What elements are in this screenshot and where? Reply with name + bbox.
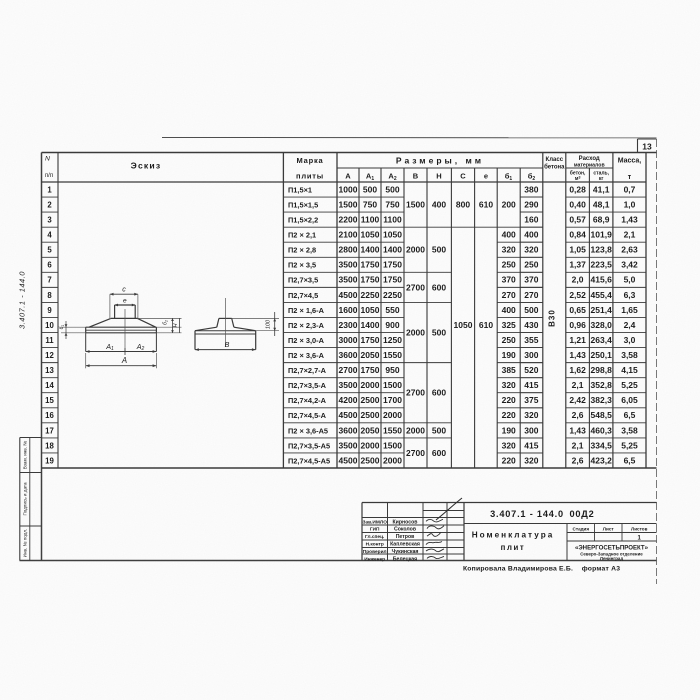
svg-text:123,8: 123,8 — [591, 245, 613, 255]
svg-text:190: 190 — [502, 350, 516, 360]
svg-text:12: 12 — [45, 351, 54, 360]
svg-text:6,5: 6,5 — [624, 410, 636, 420]
svg-text:1,43: 1,43 — [569, 350, 586, 360]
svg-text:2000: 2000 — [383, 455, 402, 465]
svg-text:610: 610 — [479, 199, 493, 209]
svg-text:П2,7×4,5: П2,7×4,5 — [288, 291, 318, 300]
svg-text:5,25: 5,25 — [621, 380, 638, 390]
svg-text:2000: 2000 — [406, 425, 425, 435]
svg-text:251,4: 251,4 — [591, 305, 613, 315]
svg-text:А: А — [345, 172, 351, 181]
svg-text:263,4: 263,4 — [591, 335, 613, 345]
svg-text:2000: 2000 — [383, 410, 402, 420]
svg-text:1,43: 1,43 — [621, 215, 638, 225]
svg-text:В30: В30 — [548, 309, 557, 327]
svg-text:5,0: 5,0 — [624, 275, 636, 285]
svg-text:15: 15 — [45, 396, 54, 405]
svg-text:1500: 1500 — [383, 440, 402, 450]
svg-text:1,37: 1,37 — [569, 260, 586, 270]
svg-text:520: 520 — [524, 365, 538, 375]
svg-text:0,65: 0,65 — [569, 305, 586, 315]
svg-text:«ЭНЕРГОСЕТЬПРОЕКТ»: «ЭНЕРГОСЕТЬПРОЕКТ» — [575, 545, 649, 552]
svg-text:2,4: 2,4 — [624, 320, 636, 330]
svg-text:4: 4 — [47, 231, 52, 240]
svg-text:2250: 2250 — [383, 290, 402, 300]
svg-text:385: 385 — [502, 365, 516, 375]
svg-text:400: 400 — [502, 305, 516, 315]
svg-text:298,8: 298,8 — [591, 365, 613, 375]
svg-text:1500: 1500 — [339, 199, 358, 209]
svg-text:Белецкая: Белецкая — [393, 556, 417, 562]
svg-text:Ленинград: Ленинград — [600, 556, 623, 561]
svg-text:430: 430 — [524, 320, 538, 330]
svg-text:2000: 2000 — [406, 245, 425, 255]
svg-text:с: с — [122, 287, 126, 294]
svg-text:П2 × 2,8: П2 × 2,8 — [288, 246, 316, 255]
svg-text:1750: 1750 — [383, 260, 402, 270]
svg-text:4500: 4500 — [339, 455, 358, 465]
svg-text:4200: 4200 — [339, 395, 358, 405]
svg-text:500: 500 — [432, 327, 446, 337]
svg-text:14: 14 — [45, 381, 54, 390]
svg-text:Подпись и дата: Подпись и дата — [22, 482, 27, 515]
svg-text:1050: 1050 — [361, 230, 380, 240]
svg-text:0,84: 0,84 — [569, 230, 586, 240]
svg-text:415: 415 — [524, 380, 538, 390]
svg-text:2200: 2200 — [339, 215, 358, 225]
svg-text:220: 220 — [502, 455, 516, 465]
svg-text:3,58: 3,58 — [621, 350, 638, 360]
svg-text:3: 3 — [47, 216, 52, 225]
svg-text:2300: 2300 — [339, 320, 358, 330]
svg-text:320: 320 — [524, 410, 538, 420]
svg-text:Эскиз: Эскиз — [131, 161, 162, 171]
svg-text:101,9: 101,9 — [591, 230, 613, 240]
svg-text:1,05: 1,05 — [569, 245, 586, 255]
svg-text:8: 8 — [47, 291, 52, 300]
svg-text:П1,5×2,2: П1,5×2,2 — [288, 216, 318, 225]
svg-text:500: 500 — [524, 305, 538, 315]
svg-text:П2 × 2,3-А: П2 × 2,3-А — [288, 321, 325, 330]
svg-text:1,43: 1,43 — [569, 425, 586, 435]
svg-text:500: 500 — [385, 184, 399, 194]
svg-text:250: 250 — [502, 260, 516, 270]
svg-text:Марка: Марка — [296, 156, 323, 165]
svg-text:455,4: 455,4 — [591, 290, 613, 300]
svg-text:2700: 2700 — [406, 388, 425, 398]
svg-text:Копировала Владимирова Е.Б.: Копировала Владимирова Е.Б. — [463, 566, 573, 573]
svg-text:400: 400 — [524, 230, 538, 240]
svg-text:П2,7×3,5: П2,7×3,5 — [288, 276, 318, 285]
svg-text:С: С — [460, 172, 466, 181]
svg-text:3600: 3600 — [339, 425, 358, 435]
svg-text:2000: 2000 — [406, 327, 425, 337]
svg-text:1700: 1700 — [383, 395, 402, 405]
svg-text:6,5: 6,5 — [624, 455, 636, 465]
svg-text:900: 900 — [385, 320, 399, 330]
svg-text:2,1: 2,1 — [572, 440, 584, 450]
svg-text:1000: 1000 — [339, 184, 358, 194]
svg-text:548,5: 548,5 — [591, 410, 613, 420]
svg-text:3500: 3500 — [339, 275, 358, 285]
svg-text:3000: 3000 — [339, 335, 358, 345]
svg-text:П2 × 3,6-А5: П2 × 3,6-А5 — [288, 426, 328, 435]
svg-text:2500: 2500 — [361, 455, 380, 465]
svg-text:460,3: 460,3 — [591, 425, 613, 435]
svg-text:Листов: Листов — [631, 527, 648, 532]
svg-text:2: 2 — [47, 200, 52, 209]
svg-text:Проверил: Проверил — [363, 549, 387, 555]
svg-text:материалов: материалов — [574, 163, 605, 169]
svg-text:Лист: Лист — [603, 527, 615, 532]
svg-text:П2,7×2,7-А: П2,7×2,7-А — [288, 366, 327, 375]
svg-text:270: 270 — [524, 290, 538, 300]
svg-text:П2,7×4,2-А: П2,7×4,2-А — [288, 396, 327, 405]
svg-text:290: 290 — [524, 199, 538, 209]
svg-text:10: 10 — [45, 321, 54, 330]
svg-text:е: е — [484, 172, 488, 181]
svg-text:кг: кг — [599, 176, 604, 182]
svg-text:400: 400 — [502, 230, 516, 240]
svg-text:2000: 2000 — [361, 380, 380, 390]
svg-text:Номенклатура: Номенклатура — [472, 531, 555, 540]
svg-text:П2,7×4,5-А: П2,7×4,5-А — [288, 411, 327, 420]
svg-text:1050: 1050 — [454, 320, 473, 330]
svg-text:П2 × 3,5: П2 × 3,5 — [288, 261, 316, 270]
svg-text:190: 190 — [502, 425, 516, 435]
svg-text:Н.контр: Н.контр — [366, 542, 384, 548]
svg-text:415,6: 415,6 — [591, 275, 613, 285]
svg-text:Н: Н — [436, 172, 441, 181]
svg-text:2,52: 2,52 — [569, 290, 586, 300]
svg-text:4,15: 4,15 — [621, 365, 638, 375]
svg-text:320: 320 — [502, 440, 516, 450]
svg-text:9: 9 — [47, 306, 52, 315]
svg-text:0,57: 0,57 — [569, 215, 586, 225]
svg-text:1,21: 1,21 — [569, 335, 586, 345]
svg-text:334,5: 334,5 — [591, 440, 613, 450]
svg-text:Инженер: Инженер — [364, 556, 385, 562]
svg-text:6,05: 6,05 — [621, 395, 638, 405]
svg-text:бетона: бетона — [544, 164, 565, 171]
svg-text:3,58: 3,58 — [621, 425, 638, 435]
svg-text:19: 19 — [45, 456, 54, 465]
svg-text:2000: 2000 — [361, 440, 380, 450]
svg-text:200: 200 — [502, 199, 516, 209]
svg-text:Петров: Петров — [396, 534, 415, 540]
svg-text:Соколов: Соколов — [394, 527, 416, 533]
svg-text:500: 500 — [432, 245, 446, 255]
svg-text:270: 270 — [502, 290, 516, 300]
svg-text:П2,7×4,5-А5: П2,7×4,5-А5 — [288, 456, 330, 465]
svg-text:П2 × 3,0-А: П2 × 3,0-А — [288, 336, 325, 345]
svg-text:1550: 1550 — [383, 350, 402, 360]
svg-text:3500: 3500 — [339, 260, 358, 270]
svg-text:А: А — [121, 356, 127, 365]
svg-text:2700: 2700 — [406, 448, 425, 458]
svg-text:П2 × 2,1: П2 × 2,1 — [288, 231, 316, 240]
svg-text:1100: 1100 — [383, 215, 402, 225]
svg-text:320: 320 — [502, 380, 516, 390]
svg-text:16: 16 — [45, 411, 54, 420]
svg-text:1750: 1750 — [361, 260, 380, 270]
svg-text:1050: 1050 — [361, 305, 380, 315]
svg-text:Взам. инв. №: Взам. инв. № — [22, 441, 27, 470]
svg-text:4500: 4500 — [339, 290, 358, 300]
svg-text:48,1: 48,1 — [593, 199, 610, 209]
svg-text:250,1: 250,1 — [591, 350, 613, 360]
svg-text:0,96: 0,96 — [569, 320, 586, 330]
svg-text:2,63: 2,63 — [621, 245, 638, 255]
svg-text:2250: 2250 — [361, 290, 380, 300]
svg-text:7: 7 — [47, 276, 51, 285]
svg-text:750: 750 — [385, 199, 399, 209]
svg-text:1050: 1050 — [383, 230, 402, 240]
svg-text:Масса,: Масса, — [618, 158, 642, 165]
svg-text:4500: 4500 — [339, 410, 358, 420]
svg-text:41,1: 41,1 — [593, 184, 610, 194]
svg-text:3,0: 3,0 — [624, 335, 636, 345]
svg-text:380: 380 — [524, 184, 538, 194]
svg-text:Зав.ИМЛО: Зав.ИМЛО — [362, 519, 387, 525]
svg-text:2500: 2500 — [361, 410, 380, 420]
svg-text:2700: 2700 — [406, 282, 425, 292]
svg-text:250: 250 — [502, 335, 516, 345]
svg-text:1400: 1400 — [361, 320, 380, 330]
svg-text:1750: 1750 — [361, 365, 380, 375]
svg-text:415: 415 — [524, 440, 538, 450]
svg-text:П1,5×1: П1,5×1 — [288, 185, 312, 194]
svg-text:2700: 2700 — [339, 365, 358, 375]
svg-text:300: 300 — [524, 350, 538, 360]
svg-text:1,65: 1,65 — [621, 305, 638, 315]
svg-text:2,6: 2,6 — [572, 455, 584, 465]
svg-text:0,28: 0,28 — [569, 184, 586, 194]
svg-text:1,62: 1,62 — [569, 365, 586, 375]
svg-text:370: 370 — [502, 275, 516, 285]
svg-text:500: 500 — [432, 425, 446, 435]
svg-text:610: 610 — [479, 320, 493, 330]
svg-text:ГИП: ГИП — [370, 527, 380, 533]
svg-text:е: е — [123, 298, 127, 305]
svg-text:600: 600 — [432, 282, 446, 292]
svg-text:0,7: 0,7 — [624, 184, 636, 194]
svg-text:1400: 1400 — [361, 245, 380, 255]
svg-text:220: 220 — [502, 395, 516, 405]
svg-text:325: 325 — [502, 320, 516, 330]
svg-text:2800: 2800 — [339, 245, 358, 255]
svg-text:00Д2: 00Д2 — [569, 509, 594, 519]
svg-text:5: 5 — [47, 246, 52, 255]
svg-text:18: 18 — [45, 441, 54, 450]
svg-text:160: 160 — [524, 215, 538, 225]
svg-text:750: 750 — [363, 199, 377, 209]
svg-text:1250: 1250 — [383, 335, 402, 345]
svg-text:Размеры, мм: Размеры, мм — [396, 156, 484, 166]
svg-text:600: 600 — [432, 388, 446, 398]
svg-text:1100: 1100 — [361, 215, 380, 225]
svg-text:400: 400 — [432, 199, 446, 209]
svg-text:100: 100 — [266, 319, 272, 329]
svg-text:1: 1 — [47, 185, 52, 194]
svg-text:3.407.1 - 144.0: 3.407.1 - 144.0 — [490, 509, 564, 519]
svg-text:2,6: 2,6 — [572, 410, 584, 420]
svg-text:1,0: 1,0 — [624, 199, 636, 209]
svg-text:3.407.1 - 144.0: 3.407.1 - 144.0 — [18, 271, 27, 329]
svg-text:1600: 1600 — [339, 305, 358, 315]
svg-text:формат А3: формат А3 — [582, 566, 621, 573]
svg-text:5,25: 5,25 — [621, 440, 638, 450]
svg-text:320: 320 — [524, 245, 538, 255]
svg-text:423,2: 423,2 — [591, 455, 613, 465]
svg-text:352,8: 352,8 — [591, 380, 613, 390]
svg-text:П1,5×1,5: П1,5×1,5 — [288, 200, 318, 209]
svg-text:П2 × 1,6-А: П2 × 1,6-А — [288, 306, 325, 315]
svg-text:Чукинская: Чукинская — [392, 549, 419, 555]
svg-text:1400: 1400 — [383, 245, 402, 255]
svg-text:п/п: п/п — [45, 173, 53, 179]
svg-text:3500: 3500 — [339, 380, 358, 390]
svg-text:т: т — [628, 174, 632, 181]
svg-text:950: 950 — [385, 365, 399, 375]
svg-text:1500: 1500 — [406, 199, 425, 209]
svg-text:13: 13 — [45, 366, 54, 375]
svg-text:П2,7×3,5-А: П2,7×3,5-А — [288, 381, 327, 390]
svg-text:0,40: 0,40 — [569, 199, 586, 209]
svg-text:N: N — [45, 156, 50, 163]
svg-text:Н: Н — [173, 323, 179, 327]
svg-text:В: В — [225, 340, 230, 349]
svg-text:6,3: 6,3 — [624, 290, 636, 300]
svg-text:плиты: плиты — [296, 172, 324, 181]
svg-text:68,9: 68,9 — [593, 215, 610, 225]
svg-text:382,3: 382,3 — [591, 395, 613, 405]
svg-text:Расход: Расход — [579, 156, 600, 162]
svg-text:17: 17 — [45, 426, 54, 435]
svg-text:Кирносов: Кирносов — [392, 519, 417, 525]
svg-text:220: 220 — [502, 410, 516, 420]
svg-text:328,0: 328,0 — [591, 320, 613, 330]
svg-text:355: 355 — [524, 335, 538, 345]
svg-text:В: В — [413, 172, 419, 181]
svg-text:1550: 1550 — [383, 425, 402, 435]
svg-text:320: 320 — [524, 455, 538, 465]
svg-text:13: 13 — [642, 142, 652, 152]
svg-text:1750: 1750 — [361, 335, 380, 345]
svg-text:Инв. № подл.: Инв. № подл. — [22, 529, 27, 558]
svg-text:2100: 2100 — [339, 230, 358, 240]
svg-text:223,5: 223,5 — [591, 260, 613, 270]
svg-text:1500: 1500 — [383, 380, 402, 390]
svg-text:6: 6 — [47, 261, 52, 270]
svg-text:550: 550 — [385, 305, 399, 315]
svg-text:375: 375 — [524, 395, 538, 405]
svg-text:П2,7×3,5-А5: П2,7×3,5-А5 — [288, 441, 330, 450]
svg-text:3500: 3500 — [339, 440, 358, 450]
svg-text:1750: 1750 — [361, 275, 380, 285]
svg-text:320: 320 — [502, 245, 516, 255]
svg-text:300: 300 — [524, 425, 538, 435]
svg-text:250: 250 — [524, 260, 538, 270]
svg-text:600: 600 — [432, 448, 446, 458]
svg-text:2,1: 2,1 — [624, 230, 636, 240]
svg-text:плит: плит — [501, 543, 526, 552]
svg-text:3600: 3600 — [339, 350, 358, 360]
svg-text:Класс: Класс — [546, 157, 564, 163]
svg-text:1750: 1750 — [383, 275, 402, 285]
svg-text:Каплевская: Каплевская — [390, 542, 420, 548]
svg-text:11: 11 — [45, 336, 54, 345]
svg-text:2,0: 2,0 — [572, 275, 584, 285]
svg-text:3,42: 3,42 — [621, 260, 638, 270]
svg-text:Гл.спец.: Гл.спец. — [365, 534, 384, 540]
svg-text:2050: 2050 — [361, 425, 380, 435]
svg-text:Стадия: Стадия — [573, 527, 590, 532]
svg-text:2,1: 2,1 — [572, 380, 584, 390]
svg-text:500: 500 — [363, 184, 377, 194]
svg-text:370: 370 — [524, 275, 538, 285]
svg-text:П2 × 3,6-А: П2 × 3,6-А — [288, 351, 325, 360]
svg-text:2050: 2050 — [361, 350, 380, 360]
svg-text:800: 800 — [456, 199, 470, 209]
svg-text:2500: 2500 — [361, 395, 380, 405]
svg-text:2,42: 2,42 — [569, 395, 586, 405]
